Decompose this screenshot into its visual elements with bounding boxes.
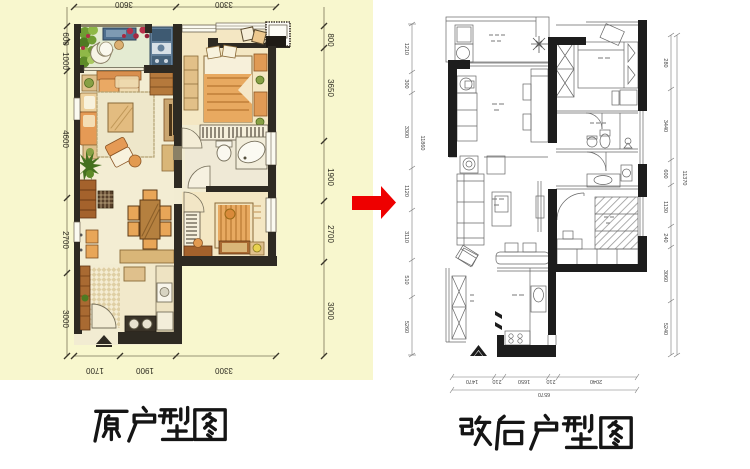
svg-text:3440: 3440 [662, 120, 668, 132]
svg-text:210: 210 [492, 378, 501, 384]
svg-text:2700: 2700 [61, 231, 70, 249]
svg-text:600: 600 [662, 169, 668, 178]
svg-text:1130: 1130 [662, 201, 668, 213]
svg-text:510: 510 [403, 275, 409, 284]
svg-text:3060: 3060 [662, 270, 668, 282]
svg-text:210: 210 [546, 378, 555, 384]
svg-text:3000: 3000 [326, 302, 335, 320]
svg-text:3000: 3000 [61, 310, 70, 328]
svg-text:4600: 4600 [61, 130, 70, 148]
svg-text:6570: 6570 [538, 391, 550, 397]
svg-text:3650: 3650 [326, 79, 335, 97]
svg-text:280: 280 [662, 58, 668, 67]
svg-text:1000: 1000 [61, 52, 70, 70]
svg-text:3110: 3110 [403, 231, 409, 243]
svg-text:600: 600 [61, 32, 70, 46]
svg-text:3300: 3300 [403, 126, 409, 138]
svg-text:240: 240 [662, 233, 668, 242]
svg-text:2040: 2040 [590, 378, 602, 384]
svg-text:1700: 1700 [86, 366, 104, 375]
svg-text:3300: 3300 [215, 0, 233, 9]
svg-text:3300: 3300 [215, 366, 233, 375]
svg-text:300: 300 [403, 79, 409, 88]
svg-text:1470: 1470 [466, 378, 478, 384]
svg-text:1210: 1210 [403, 43, 409, 55]
svg-text:11860: 11860 [419, 136, 425, 151]
svg-text:1900: 1900 [326, 168, 335, 186]
svg-text:2700: 2700 [326, 225, 335, 243]
svg-text:1120: 1120 [403, 185, 409, 197]
svg-text:1650: 1650 [518, 378, 530, 384]
svg-text:11370: 11370 [681, 171, 687, 186]
svg-text:3600: 3600 [115, 0, 133, 9]
svg-text:800: 800 [326, 33, 335, 47]
svg-text:5260: 5260 [403, 321, 409, 333]
svg-text:1900: 1900 [136, 366, 154, 375]
svg-text:5240: 5240 [662, 323, 668, 335]
